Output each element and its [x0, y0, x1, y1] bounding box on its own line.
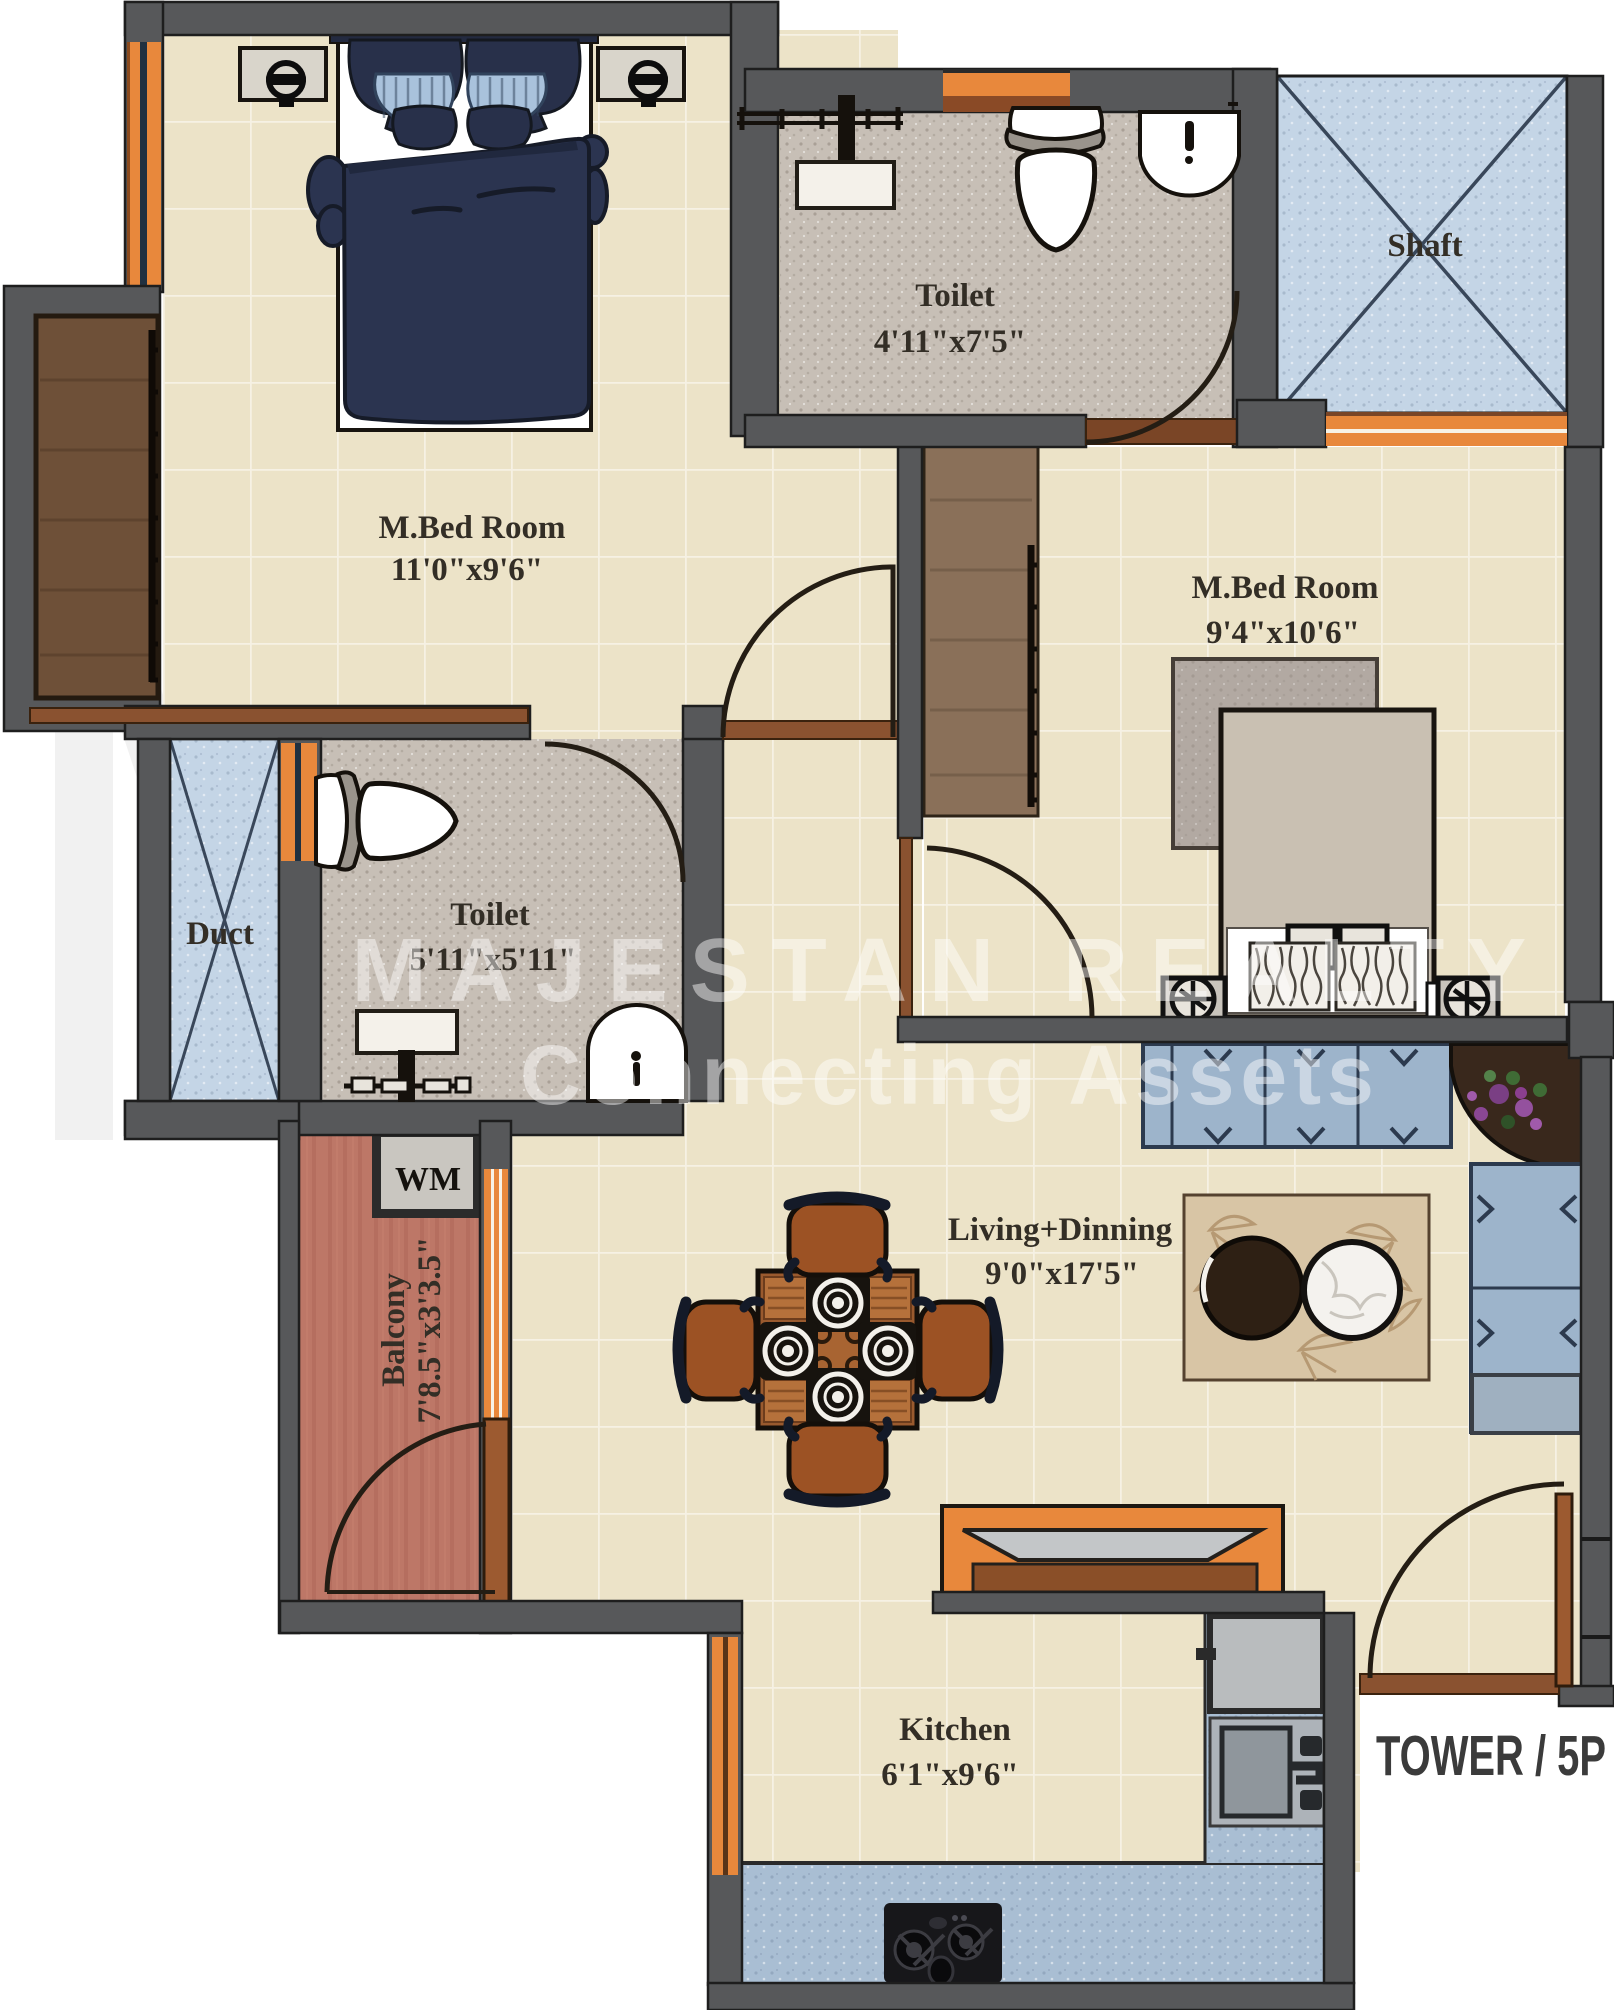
svg-text:TOWER / 5P: TOWER / 5P: [1376, 1724, 1606, 1788]
svg-text:9'4"x10'6": 9'4"x10'6": [1206, 615, 1360, 651]
svg-text:9'0"x17'5": 9'0"x17'5": [985, 1256, 1139, 1292]
svg-text:7'8.5"x3'3.5": 7'8.5"x3'3.5": [412, 1237, 448, 1424]
svg-text:Kitchen: Kitchen: [899, 1712, 1011, 1748]
svg-text:Duct: Duct: [186, 916, 254, 952]
svg-text:Shaft: Shaft: [1387, 228, 1462, 264]
svg-text:Connecting Assets: Connecting Assets: [520, 1028, 1380, 1122]
svg-text:Balcony: Balcony: [376, 1273, 412, 1387]
svg-text:M.Bed Room: M.Bed Room: [1192, 570, 1379, 606]
svg-text:11'0"x9'6": 11'0"x9'6": [391, 552, 543, 588]
svg-text:WM: WM: [395, 1161, 461, 1198]
svg-text:MAJESTAN REALTY: MAJESTAN REALTY: [352, 921, 1549, 1021]
svg-text:4'11"x7'5": 4'11"x7'5": [874, 324, 1026, 360]
svg-text:M.Bed Room: M.Bed Room: [379, 510, 566, 546]
svg-text:Toilet: Toilet: [915, 278, 994, 314]
svg-text:6'1"x9'6": 6'1"x9'6": [881, 1757, 1018, 1793]
svg-text:Living+Dinning: Living+Dinning: [948, 1212, 1173, 1248]
